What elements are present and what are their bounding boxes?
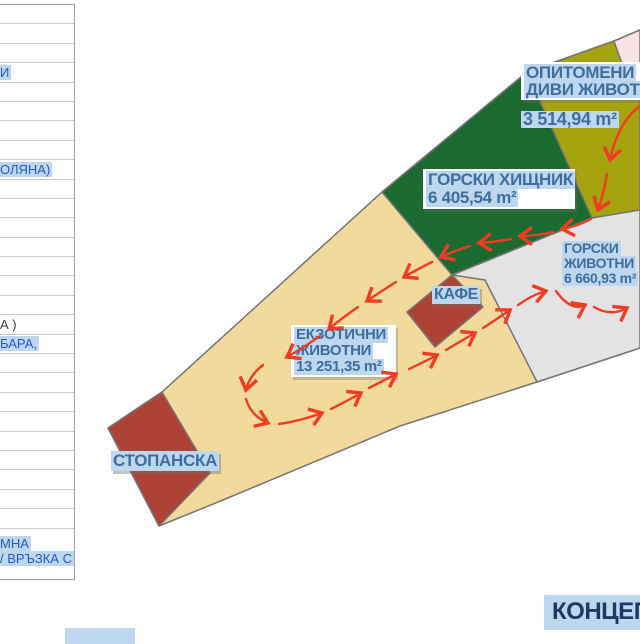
label-line: ЖИВОТНИ bbox=[294, 343, 373, 359]
legend-row bbox=[0, 199, 74, 218]
legend-row-text: А ) bbox=[0, 317, 19, 332]
label-line: ГОРСКИ ХИЩНИК bbox=[426, 171, 575, 189]
label-area-value: 3 514,94 m² bbox=[521, 111, 619, 128]
legend-row bbox=[0, 83, 74, 102]
legend-row-text: БАРА, bbox=[0, 336, 39, 351]
label-stopanska: СТОПАНСКА bbox=[111, 451, 219, 471]
legend-row bbox=[0, 121, 74, 140]
bottom-blue-rect bbox=[65, 628, 135, 644]
legend-row: ОЛЯНА) bbox=[0, 160, 74, 179]
label-area-value: 13 251,35 m² bbox=[294, 359, 384, 375]
legend-row bbox=[0, 470, 74, 489]
legend-row bbox=[0, 393, 74, 412]
legend-row bbox=[0, 296, 74, 315]
label-cafe: КАФЕ bbox=[432, 286, 480, 304]
legend-row bbox=[0, 412, 74, 431]
page-title: КОНЦЕП bbox=[544, 595, 640, 630]
legend-row-text: ОЛЯНА) bbox=[0, 162, 52, 177]
label-area-value: 6 660,93 m² bbox=[562, 271, 638, 286]
label-forest-predator: ГОРСКИ ХИЩНИК 6 405,54 m² bbox=[423, 169, 575, 209]
legend-row: И bbox=[0, 63, 74, 82]
label-area-value: 6 405,54 m² bbox=[426, 189, 518, 207]
legend-row bbox=[0, 451, 74, 470]
label-line: КАФЕ bbox=[432, 286, 480, 304]
legend-row bbox=[0, 24, 74, 43]
legend-row bbox=[0, 5, 74, 24]
legend-row bbox=[0, 276, 74, 295]
legend-row bbox=[0, 509, 74, 528]
legend-row bbox=[0, 218, 74, 237]
legend-row-text: И bbox=[0, 65, 11, 80]
legend-table: ИОЛЯНА)А )БАРА,МНА/ ВРЪЗКА С bbox=[0, 4, 75, 580]
legend-row bbox=[0, 44, 74, 63]
legend-row-text: МНА bbox=[0, 536, 31, 551]
label-forest-animals: ГОРСКИ ЖИВОТНИ 6 660,93 m² bbox=[562, 241, 638, 286]
legend-row bbox=[0, 257, 74, 276]
legend-row bbox=[0, 490, 74, 509]
legend-row bbox=[0, 180, 74, 199]
legend-row bbox=[0, 238, 74, 257]
legend-row bbox=[0, 102, 74, 121]
legend-row: А ) bbox=[0, 315, 74, 334]
legend-row bbox=[0, 432, 74, 451]
label-line: ЕКЗОТИЧНИ bbox=[294, 327, 388, 343]
legend-row bbox=[0, 373, 74, 392]
label-line: ОПИТОМЕНИ bbox=[524, 64, 636, 81]
legend-row: МНА/ ВРЪЗКА С bbox=[0, 529, 74, 579]
label-line: ЖИВОТНИ bbox=[562, 256, 636, 271]
label-exotic-animals: ЕКЗОТИЧНИ ЖИВОТНИ 13 251,35 m² bbox=[291, 325, 396, 377]
legend-row bbox=[0, 141, 74, 160]
concept-plan-page: ОПИТОМЕНИ ДИВИ ЖИВОТНИ 3 514,94 m² ГОРСК… bbox=[0, 0, 640, 644]
legend-row-text: / ВРЪЗКА С bbox=[0, 551, 74, 566]
label-line: ДИВИ ЖИВОТНИ bbox=[524, 81, 640, 98]
legend-row: БАРА, bbox=[0, 335, 74, 354]
label-line: СТОПАНСКА bbox=[111, 451, 219, 471]
label-line: ГОРСКИ bbox=[562, 241, 621, 256]
legend-row bbox=[0, 354, 74, 373]
label-tamed-wild-animals: ОПИТОМЕНИ ДИВИ ЖИВОТНИ 3 514,94 m² bbox=[521, 62, 640, 128]
